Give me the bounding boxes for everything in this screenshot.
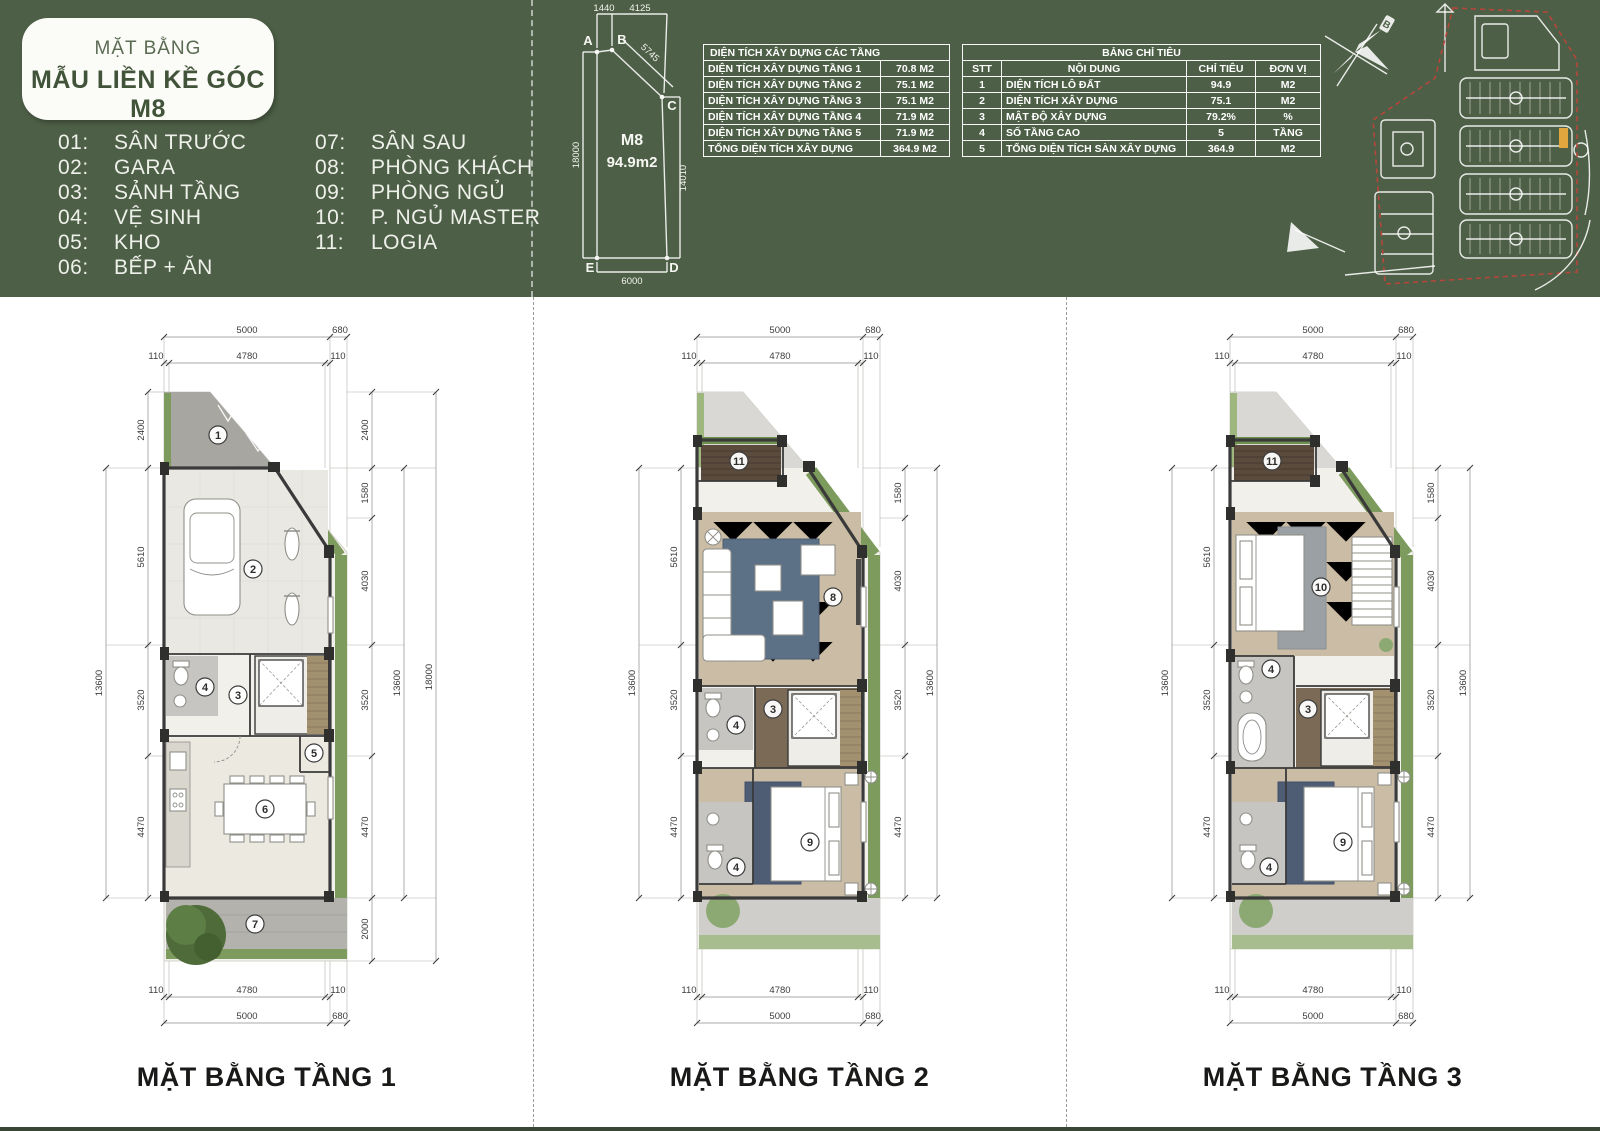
svg-text:13600: 13600 <box>392 670 403 696</box>
plan-caption-3: MẶT BẰNG TẦNG 3 <box>1066 1062 1599 1093</box>
svg-text:3: 3 <box>770 704 776 716</box>
site-plan-sketch: B <box>1285 0 1600 297</box>
tv-panel <box>856 559 861 625</box>
header-band: MẶT BẰNG MẪU LIỀN KỀ GÓC M8 01:SÂN TRƯỚC… <box>0 0 1600 297</box>
site-unit-hatching <box>1470 82 1560 254</box>
svg-text:13600: 13600 <box>627 670 638 696</box>
legend-item: 10:P. NGỦ MASTER <box>315 206 540 230</box>
nightstand <box>1378 773 1391 785</box>
brochure-page: MẶT BẰNG MẪU LIỀN KỀ GÓC M8 01:SÂN TRƯỚC… <box>0 0 1600 1131</box>
title-main: MẪU LIỀN KỀ GÓC M8 <box>22 66 274 124</box>
window <box>1394 802 1399 842</box>
svg-text:2: 2 <box>250 564 256 576</box>
sink <box>707 729 719 741</box>
toilet <box>707 845 723 869</box>
lot-point-c: C <box>667 98 677 113</box>
lot-dim-right: 14010 <box>678 165 689 191</box>
svg-text:6: 6 <box>262 804 268 816</box>
svg-text:4: 4 <box>733 720 740 732</box>
lot-point-b: B <box>617 32 626 47</box>
svg-text:5000: 5000 <box>769 325 790 336</box>
svg-text:5610: 5610 <box>136 546 147 567</box>
grass-strip-back <box>1232 935 1413 949</box>
svg-text:3520: 3520 <box>136 689 147 710</box>
room-2: 2 <box>244 560 262 578</box>
svg-text:18000: 18000 <box>424 664 435 690</box>
room-3: 3 <box>1299 700 1317 718</box>
area-table: DIỆN TÍCH XÂY DỰNG CÁC TẦNG DIỆN TÍCH XÂ… <box>703 44 950 157</box>
svg-text:4: 4 <box>1268 664 1275 676</box>
coffee-table <box>755 565 781 591</box>
plan-caption-1: MẶT BẰNG TẦNG 1 <box>0 1062 533 1093</box>
svg-text:4780: 4780 <box>236 351 257 362</box>
svg-text:13600: 13600 <box>1458 670 1469 696</box>
svg-text:680: 680 <box>1398 325 1414 336</box>
svg-text:680: 680 <box>865 325 881 336</box>
svg-text:680: 680 <box>1398 1011 1414 1022</box>
car <box>184 499 240 615</box>
svg-text:13600: 13600 <box>925 670 936 696</box>
wc-floor <box>1232 802 1286 884</box>
room-7: 7 <box>246 915 264 933</box>
lot-dim-left: 18000 <box>571 142 582 168</box>
grass-strip-back <box>699 935 880 949</box>
room-5: 5 <box>305 744 323 762</box>
svg-text:4470: 4470 <box>136 816 147 837</box>
svg-text:110: 110 <box>148 985 163 996</box>
legend-item: 02:GARA <box>58 156 176 180</box>
svg-text:680: 680 <box>332 1011 348 1022</box>
svg-text:4470: 4470 <box>1426 816 1437 837</box>
svg-text:5000: 5000 <box>236 1011 257 1022</box>
room-3: 3 <box>229 686 247 704</box>
svg-text:4470: 4470 <box>893 816 904 837</box>
legend-item: 08:PHÒNG KHÁCH <box>315 156 533 180</box>
svg-text:13600: 13600 <box>1160 670 1171 696</box>
window <box>328 777 333 819</box>
svg-text:11: 11 <box>733 456 745 468</box>
svg-text:110: 110 <box>1396 985 1411 996</box>
lot-area: 94.9m2 <box>607 154 658 171</box>
sink <box>1240 691 1252 703</box>
room-9: 9 <box>801 833 819 851</box>
window <box>861 587 866 627</box>
svg-text:4470: 4470 <box>360 816 371 837</box>
window <box>1394 587 1399 627</box>
svg-text:2400: 2400 <box>360 419 371 440</box>
floor-plan-2: 5000 680 110 4780 110 5610 3520 4470 136… <box>533 297 1066 1131</box>
svg-text:8: 8 <box>830 592 836 604</box>
title-small: MẶT BẰNG <box>22 38 274 60</box>
legend-item: 03:SẢNH TẦNG <box>58 181 241 205</box>
svg-text:4: 4 <box>1266 862 1273 874</box>
svg-text:4030: 4030 <box>893 570 904 591</box>
sink <box>1240 813 1252 825</box>
svg-text:5000: 5000 <box>1302 1011 1323 1022</box>
room-3: 3 <box>764 700 782 718</box>
floor-plan-1: 5000 680 110 4780 110 2400 5610 3520 447… <box>0 297 533 1131</box>
svg-text:11: 11 <box>1266 456 1278 468</box>
plan-caption-2: MẶT BẰNG TẦNG 2 <box>533 1062 1066 1093</box>
svg-text:110: 110 <box>863 985 878 996</box>
svg-text:110: 110 <box>148 351 163 362</box>
area-table-title: DIỆN TÍCH XÂY DỰNG CÁC TẦNG <box>704 45 950 61</box>
lot-code: M8 <box>621 132 643 149</box>
svg-text:2000: 2000 <box>360 918 371 939</box>
svg-text:4470: 4470 <box>669 816 680 837</box>
svg-text:1580: 1580 <box>1426 482 1437 503</box>
lot-dim-bottom: 6000 <box>621 276 642 287</box>
site-block-badges <box>1398 92 1588 245</box>
grass-strip-right <box>868 555 880 898</box>
wc-floor <box>699 802 753 884</box>
svg-text:4030: 4030 <box>1426 570 1437 591</box>
legend-item: 11:LOGIA <box>315 231 438 255</box>
floor-plan-3: 5000 680 110 4780 110 5610 3520 4470 136… <box>1066 297 1599 1131</box>
svg-text:1: 1 <box>215 430 221 442</box>
lot-point-e: E <box>586 260 595 275</box>
header-fold-line <box>531 0 533 297</box>
nightstand <box>845 773 858 785</box>
lot-dim-top2: 4125 <box>629 3 650 14</box>
room-8: 8 <box>824 588 842 606</box>
tree <box>166 905 226 965</box>
svg-text:1580: 1580 <box>360 482 371 503</box>
armchair <box>801 545 835 575</box>
stairs <box>307 656 328 734</box>
svg-text:3520: 3520 <box>360 689 371 710</box>
lot-dim-top1: 1440 <box>593 3 614 14</box>
svg-text:3520: 3520 <box>1202 689 1213 710</box>
svg-text:3: 3 <box>235 690 241 702</box>
grass-strip-right <box>335 555 347 898</box>
legend-item: 09:PHÒNG NGỦ <box>315 181 505 205</box>
svg-text:110: 110 <box>863 351 878 362</box>
svg-text:110: 110 <box>1214 351 1229 362</box>
svg-text:680: 680 <box>332 325 348 336</box>
svg-text:680: 680 <box>865 1011 881 1022</box>
svg-text:5610: 5610 <box>1202 546 1213 567</box>
spec-table: BẢNG CHỈ TIÊU STT NỘI DUNG CHỈ TIÊU ĐƠN … <box>962 44 1321 157</box>
stairs <box>840 690 861 766</box>
grass-strip-left <box>164 393 171 467</box>
svg-text:9: 9 <box>1340 837 1346 849</box>
master-bed <box>1236 535 1304 631</box>
svg-text:5000: 5000 <box>769 1011 790 1022</box>
svg-text:2400: 2400 <box>136 419 147 440</box>
lot-dim-diag: 5745 <box>638 42 661 64</box>
svg-text:5610: 5610 <box>669 546 680 567</box>
svg-text:7: 7 <box>252 919 258 931</box>
grass-strip-right <box>1401 555 1413 898</box>
room-6: 6 <box>256 800 274 818</box>
svg-text:110: 110 <box>330 985 345 996</box>
toilet <box>1238 661 1254 684</box>
toilet <box>705 693 721 717</box>
svg-text:9: 9 <box>807 837 813 849</box>
svg-text:4780: 4780 <box>769 351 790 362</box>
sink <box>707 813 719 825</box>
compass-icon: B <box>1325 15 1395 86</box>
svg-text:3520: 3520 <box>893 689 904 710</box>
window <box>861 802 866 842</box>
svg-text:4780: 4780 <box>769 985 790 996</box>
legend-item: 01:SÂN TRƯỚC <box>58 131 246 155</box>
room-4: 4 <box>196 678 214 696</box>
bottom-border-bar <box>0 1127 1600 1131</box>
legend-item: 07:SÂN SAU <box>315 131 467 155</box>
site-roads <box>1287 130 1590 290</box>
coffee-table <box>773 601 803 635</box>
room-4: 4 <box>727 716 745 734</box>
kitchen-sink <box>170 752 186 770</box>
svg-text:3: 3 <box>1305 704 1311 716</box>
svg-text:110: 110 <box>1396 351 1411 362</box>
room-9: 9 <box>1334 833 1352 851</box>
legend-item: 04:VỆ SINH <box>58 206 202 230</box>
svg-text:3520: 3520 <box>1426 689 1437 710</box>
svg-text:5: 5 <box>311 748 317 760</box>
wardrobe <box>1352 537 1392 625</box>
window <box>328 597 333 633</box>
svg-text:110: 110 <box>681 985 696 996</box>
stairs <box>1373 690 1394 766</box>
svg-text:110: 110 <box>330 351 345 362</box>
nightstand <box>1378 883 1391 895</box>
svg-text:4780: 4780 <box>1302 985 1323 996</box>
room-4b: 4 <box>1260 858 1278 876</box>
room-4b: 4 <box>727 858 745 876</box>
plant <box>1379 638 1393 652</box>
sink <box>174 695 186 707</box>
room-10: 10 <box>1312 578 1330 596</box>
svg-text:5000: 5000 <box>236 325 257 336</box>
svg-text:4030: 4030 <box>360 570 371 591</box>
svg-text:4780: 4780 <box>236 985 257 996</box>
lot-diagram: 1440 4125 5745 18000 14010 6000 A B C D … <box>540 0 710 295</box>
svg-text:110: 110 <box>681 351 696 362</box>
nightstand <box>845 883 858 895</box>
svg-text:4: 4 <box>733 862 740 874</box>
site-blocks <box>1375 4 1572 274</box>
svg-text:13600: 13600 <box>94 670 105 696</box>
toilet <box>173 661 189 685</box>
svg-text:1580: 1580 <box>893 482 904 503</box>
stove <box>170 789 186 811</box>
title-box: MẶT BẰNG MẪU LIỀN KỀ GÓC M8 <box>22 18 274 120</box>
lot-point-a: A <box>583 33 593 48</box>
room-4: 4 <box>1262 660 1280 678</box>
lot-point-d: D <box>669 260 678 275</box>
legend-item: 05:KHO <box>58 231 161 255</box>
legend-item: 06:BẾP + ĂN <box>58 256 213 280</box>
spec-table-title: BẢNG CHỈ TIÊU <box>963 45 1321 61</box>
svg-text:110: 110 <box>1214 985 1229 996</box>
room-11: 11 <box>1263 452 1281 470</box>
toilet <box>1240 845 1256 869</box>
svg-text:3520: 3520 <box>669 689 680 710</box>
svg-text:4780: 4780 <box>1302 351 1323 362</box>
svg-text:10: 10 <box>1315 582 1327 594</box>
svg-text:5000: 5000 <box>1302 325 1323 336</box>
svg-text:4470: 4470 <box>1202 816 1213 837</box>
highlighted-lot-m8 <box>1559 128 1568 148</box>
room-11: 11 <box>730 452 748 470</box>
room-1: 1 <box>209 426 227 444</box>
svg-text:4: 4 <box>202 682 209 694</box>
